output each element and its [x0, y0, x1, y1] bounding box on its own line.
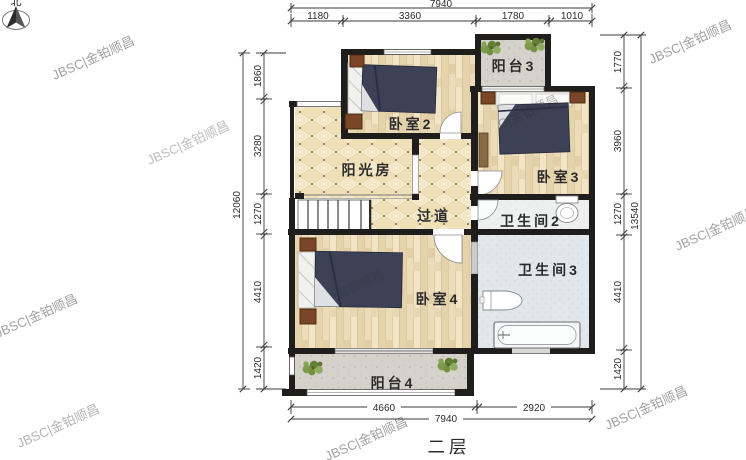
svg-text:4660: 4660 [373, 403, 396, 414]
svg-text:阳光房: 阳光房 [342, 162, 393, 178]
svg-text:二层: 二层 [428, 437, 471, 457]
svg-text:1860: 1860 [253, 64, 264, 87]
svg-text:1010: 1010 [561, 11, 584, 22]
svg-text:1270: 1270 [253, 202, 264, 225]
svg-text:13540: 13540 [630, 202, 641, 230]
svg-text:卧室3: 卧室3 [537, 169, 582, 185]
svg-text:卫生间2: 卫生间2 [500, 213, 562, 229]
svg-text:卧室4: 卧室4 [416, 291, 461, 307]
svg-text:阳台4: 阳台4 [371, 375, 416, 391]
svg-text:1780: 1780 [502, 11, 525, 22]
svg-text:卫生间3: 卫生间3 [518, 262, 580, 278]
svg-text:4410: 4410 [613, 280, 624, 303]
svg-text:卧室2: 卧室2 [389, 116, 434, 132]
svg-text:1420: 1420 [253, 356, 264, 379]
svg-text:阳台3: 阳台3 [492, 58, 537, 74]
svg-text:3360: 3360 [399, 11, 422, 22]
svg-text:12060: 12060 [232, 191, 243, 219]
svg-text:1770: 1770 [613, 50, 624, 73]
svg-text:1420: 1420 [613, 357, 624, 380]
svg-text:7940: 7940 [430, 0, 453, 10]
svg-text:3280: 3280 [253, 134, 264, 157]
svg-text:2920: 2920 [523, 403, 546, 414]
svg-text:7940: 7940 [435, 414, 458, 425]
svg-text:3960: 3960 [613, 129, 624, 152]
svg-text:过道: 过道 [417, 208, 451, 224]
svg-text:4410: 4410 [253, 280, 264, 303]
svg-text:1180: 1180 [307, 11, 329, 22]
svg-text:1270: 1270 [613, 202, 624, 225]
